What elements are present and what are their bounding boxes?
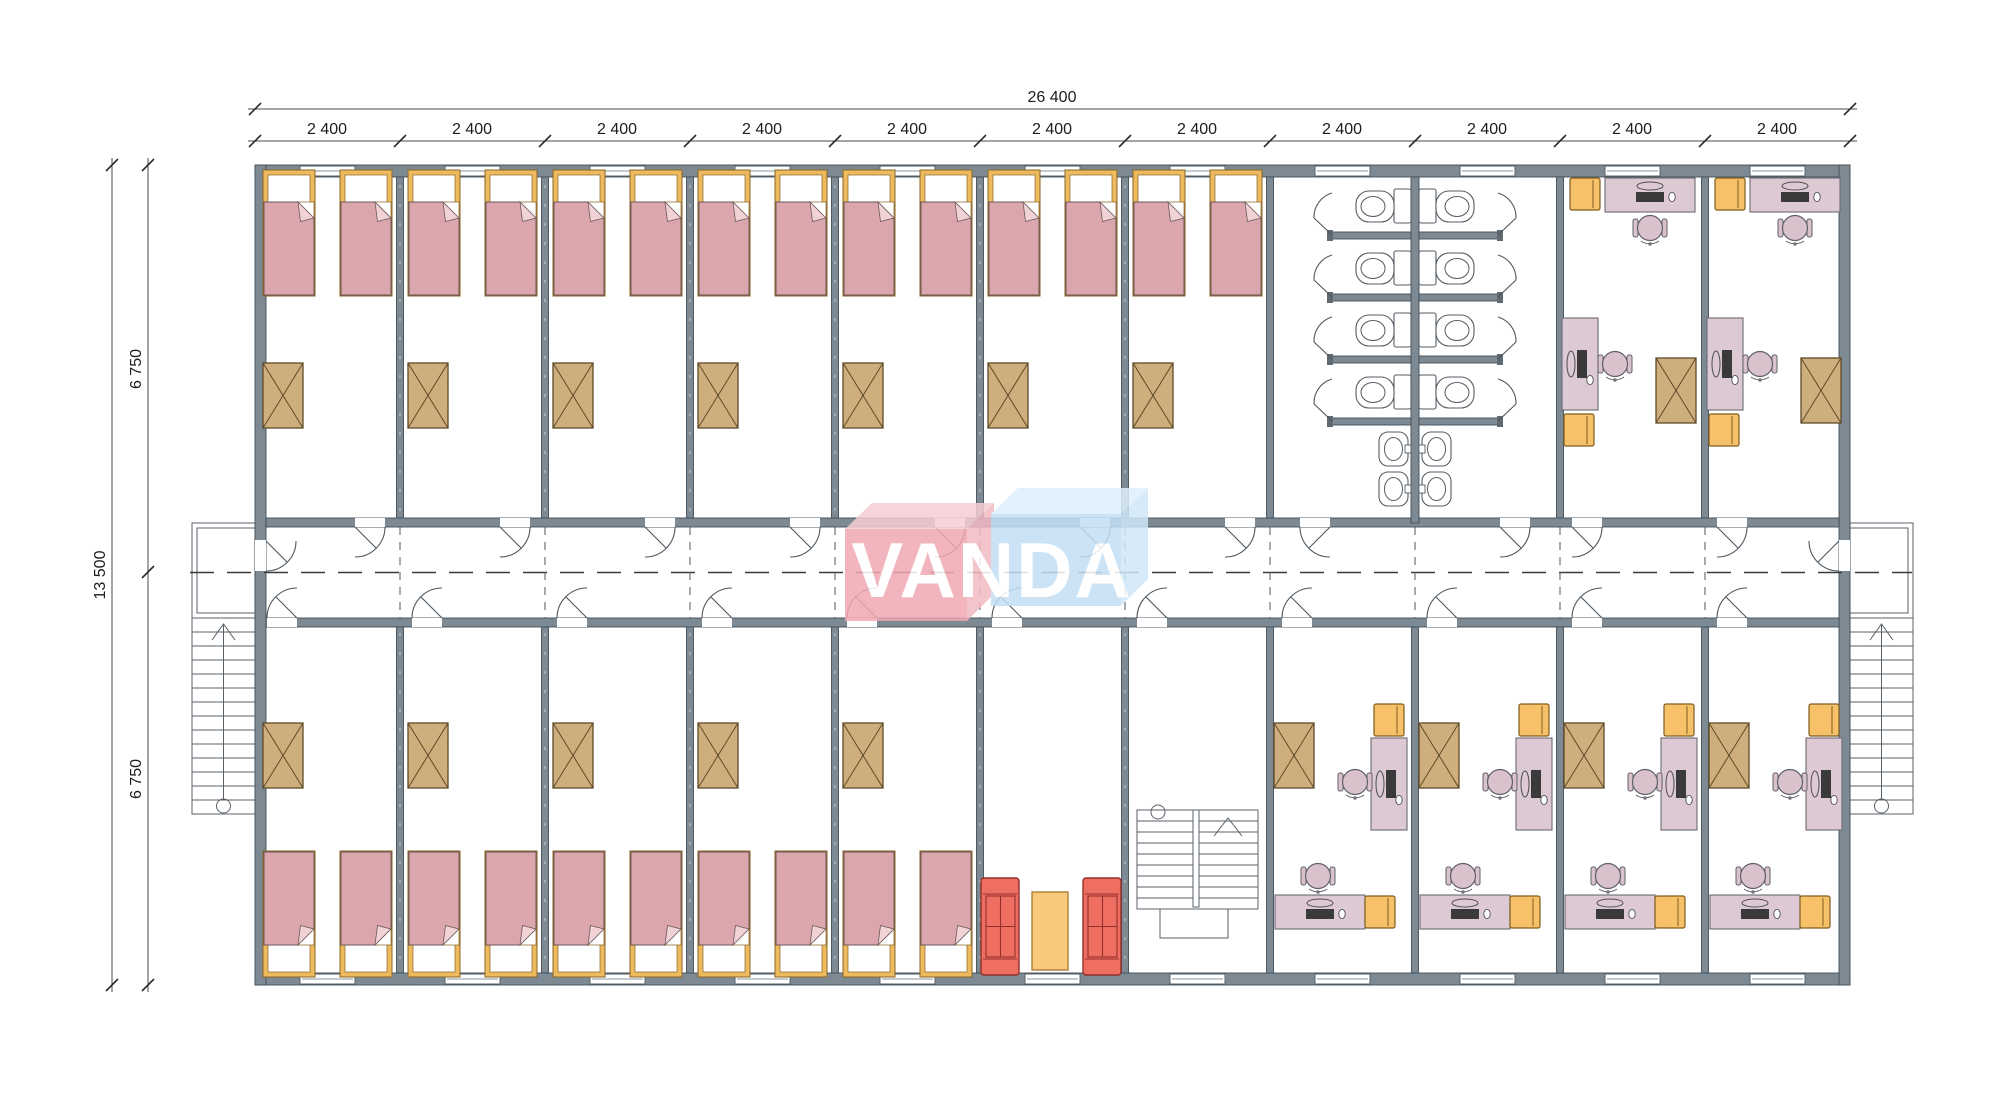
dimension-label-bay: 2 400 (597, 121, 637, 138)
corridor-wall-bottom (266, 618, 1839, 627)
bedroom (843, 170, 972, 428)
bedroom (698, 723, 827, 977)
floor-plan-drawing: 26 400 2 400 2 400 2 400 2 400 2 400 2 4… (0, 0, 2000, 1099)
dimension-label-total-width: 26 400 (1028, 89, 1077, 106)
dimension-label-bay: 2 400 (307, 121, 347, 138)
dimension-label-bay: 2 400 (887, 121, 927, 138)
external-staircase-left (192, 523, 255, 814)
watermark-logo: VANDA (845, 488, 1148, 621)
bedroom (553, 723, 682, 977)
internal-stairwell (1137, 805, 1258, 938)
bedroom (408, 170, 537, 428)
bedrooms-top-row (263, 170, 1262, 428)
dimension-label-bay: 2 400 (742, 121, 782, 138)
external-staircase-right (1850, 523, 1913, 814)
office (1562, 178, 1696, 446)
dimension-label-bay: 2 400 (1177, 121, 1217, 138)
bedroom (408, 723, 537, 977)
office (1707, 178, 1841, 446)
floor-plan-page: 26 400 2 400 2 400 2 400 2 400 2 400 2 4… (0, 0, 2000, 1099)
bedroom (263, 723, 392, 977)
exterior-wall-right (1839, 165, 1850, 985)
bedroom (1133, 170, 1262, 428)
dimension-label-bay: 2 400 (1612, 121, 1652, 138)
office (1419, 704, 1552, 929)
bedroom (263, 170, 392, 428)
coffee-table (1032, 892, 1068, 970)
dimension-label-bay: 2 400 (1467, 121, 1507, 138)
bedroom (843, 723, 972, 977)
office (1709, 704, 1842, 929)
office (1274, 704, 1407, 929)
office (1564, 704, 1697, 929)
bedroom (698, 170, 827, 428)
bedroom (988, 170, 1117, 428)
sofa (1083, 878, 1121, 975)
dimension-label-bay: 2 400 (452, 121, 492, 138)
dimension-label-bay: 2 400 (1032, 121, 1072, 138)
bedroom (553, 170, 682, 428)
dimension-label-total-depth: 13 500 (92, 550, 109, 599)
bedrooms-bottom-row (263, 723, 972, 977)
dimension-label-bay: 2 400 (1757, 121, 1797, 138)
dimension-label-bay: 2 400 (1322, 121, 1362, 138)
dimension-label-half-depth: 6 750 (128, 349, 145, 389)
watermark-text: VANDA (851, 526, 1133, 614)
dimension-label-half-depth: 6 750 (128, 759, 145, 799)
lounge-room (981, 878, 1121, 975)
sofa (981, 878, 1019, 975)
